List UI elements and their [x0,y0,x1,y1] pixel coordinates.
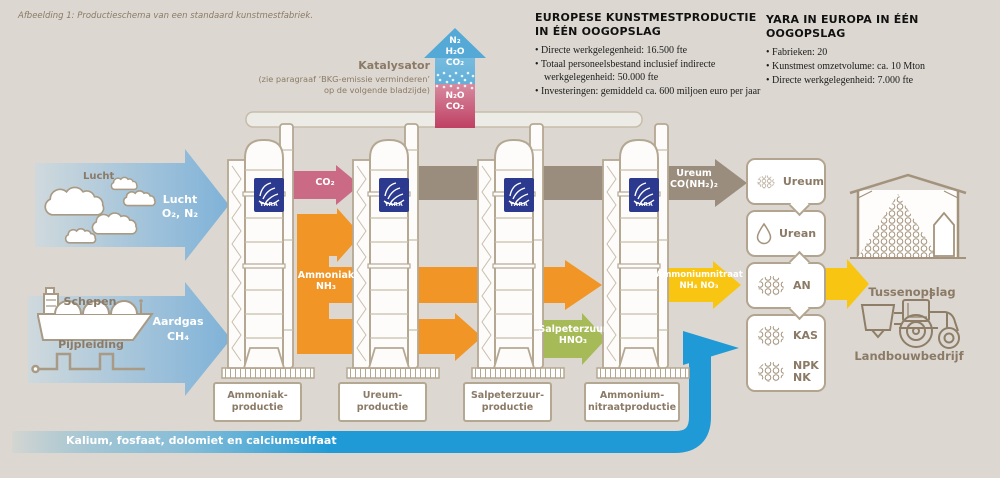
pipeline-label: Pijpleiding [48,338,134,351]
products-out-arrow [825,259,869,309]
flow-formula: NH₄ NO₃ [656,281,742,292]
product-label: Ureum [783,176,824,188]
air-label: Lucht [83,171,114,183]
warehouse-icon [850,175,966,258]
plant-name-line: Ammonium- [600,390,664,402]
plant-label-nitric: Salpeterzuur- productie [463,382,552,422]
nitric-flow-label: Salpeterzuur HNO₃ [534,324,612,346]
ammonium-nitrate-flow-label: Ammoniumnitraat NH₄ NO₃ [656,270,742,292]
catalyst-input-gases: N₂O CO₂ [430,91,480,113]
info-block-europe: EUROPESE KUNSTMESTPRODUCTIE IN ÉÉN OOGOP… [535,11,768,99]
yara-logo-text: YARA [379,202,409,208]
product-label: Urean [779,228,816,240]
air-arrow-label: Lucht O₂, N₂ [149,193,211,221]
info-block-yara: YARA IN EUROPA IN ÉÉN OOGOPSLAG Fabrieke… [766,13,998,88]
bullet-item: Totaal personeelsbestand inclusief indir… [535,58,768,84]
plant-name-line: productie [357,402,408,414]
catalyst-label: Katalysator [230,59,430,72]
flow-name: Ammoniumnitraat [656,270,742,281]
product-row-kas: KAS [756,318,818,354]
gas-label: N₂O [430,91,480,102]
air-formula: O₂, N₂ [149,207,211,221]
plant-label-urea: Ureum- productie [338,382,427,422]
plant-label-ammonia: Ammoniak- productie [213,382,302,422]
bullet-item: Directe werkgelegenheid: 7.000 fte [766,74,998,87]
flow-name: Ammoniak [294,270,358,281]
gas-label: CO₂ [430,102,480,113]
info-europe-title: EUROPESE KUNSTMESTPRODUCTIE IN ÉÉN OOGOP… [535,11,768,39]
flow-name: Ureum [652,168,736,179]
product-box-kas-npk: KAS NPK NK [746,314,826,392]
product-label: NPK NK [793,360,819,383]
catalyst-note-line1: (zie paragraaf ‘BKG-emissie verminderen’ [230,75,430,85]
flow-formula: HNO₃ [534,335,612,346]
info-yara-bullets: Fabrieken: 20 Kunstmest omzetvolume: ca.… [766,46,998,87]
product-box-ureum: Ureum [746,158,826,205]
gas-arrow-label: Aardgas CH₄ [147,314,209,344]
granules-icon [756,170,776,194]
product-label-line: NK [793,372,819,384]
bullet-item: Fabrieken: 20 [766,46,998,59]
production-diagram: Afbeelding 1: Productieschema van een st… [0,0,1000,478]
granules-icon [756,274,786,298]
granules-icon [756,360,786,384]
ammonia-flow-label: Ammoniak NH₃ [294,270,358,292]
catalyst-note-line2: op de volgende bladzijde) [230,86,430,96]
plant-name-line: productie [482,402,533,414]
plant-name-line: Salpeterzuur- [471,390,544,402]
bullet-item: Investeringen: gemiddeld ca. 600 miljoen… [535,85,768,98]
granules-icon [756,324,786,348]
bullet-item: Kunstmest omzetvolume: ca. 10 Mton [766,60,998,73]
flow-formula: CO(NH₂)₂ [652,179,736,190]
plant-name-line: Ureum- [363,390,402,402]
minerals-flow-label: Kalium, fosfaat, dolomiet en calciumsulf… [66,434,466,447]
gas-inside-label: Aardgas [147,314,209,329]
urea-flow-label: Ureum CO(NH₂)₂ [652,168,736,190]
plant-name-line: productie [232,402,283,414]
plant-label-an: Ammonium- nitraatproductie [584,382,680,422]
plant-name-line: nitraatproductie [588,402,676,414]
gas-label: CO₂ [430,58,480,69]
air-inside-label: Lucht [149,193,211,207]
yara-logo-text: YARA [254,202,284,208]
gas-formula: CH₄ [147,329,209,344]
info-yara-title: YARA IN EUROPA IN ÉÉN OOGOPSLAG [766,13,998,41]
product-label: KAS [793,330,818,342]
info-europe-bullets: Directe werkgelegenheid: 16.500 fte Tota… [535,44,768,98]
storage-label: Tussenopslag [852,286,972,300]
farm-label: Landbouwbedrijf [846,350,972,364]
bullet-item: Directe werkgelegenheid: 16.500 fte [535,44,768,57]
flow-name: Salpeterzuur [534,324,612,335]
spreader-icon [862,305,894,330]
flow-formula: NH₃ [294,281,358,292]
gas-label: N₂ [430,36,480,47]
plant-name-line: Ammoniak- [227,390,287,402]
ships-label: Schepen [50,295,130,308]
figure-caption: Afbeelding 1: Productieschema van een st… [18,11,438,21]
product-box-urean: Urean [746,210,826,257]
catalyst-output-gases: N₂ H₂O CO₂ [430,36,480,69]
product-box-an: AN [746,262,826,309]
yara-logo-text: YARA [629,202,659,208]
yara-logo-text: YARA [504,202,534,208]
droplet-icon [756,222,772,246]
gas-label: H₂O [430,47,480,58]
product-row-npk: NPK NK [756,354,819,390]
product-label: AN [793,280,811,292]
co2-flow-label: CO₂ [301,177,349,188]
